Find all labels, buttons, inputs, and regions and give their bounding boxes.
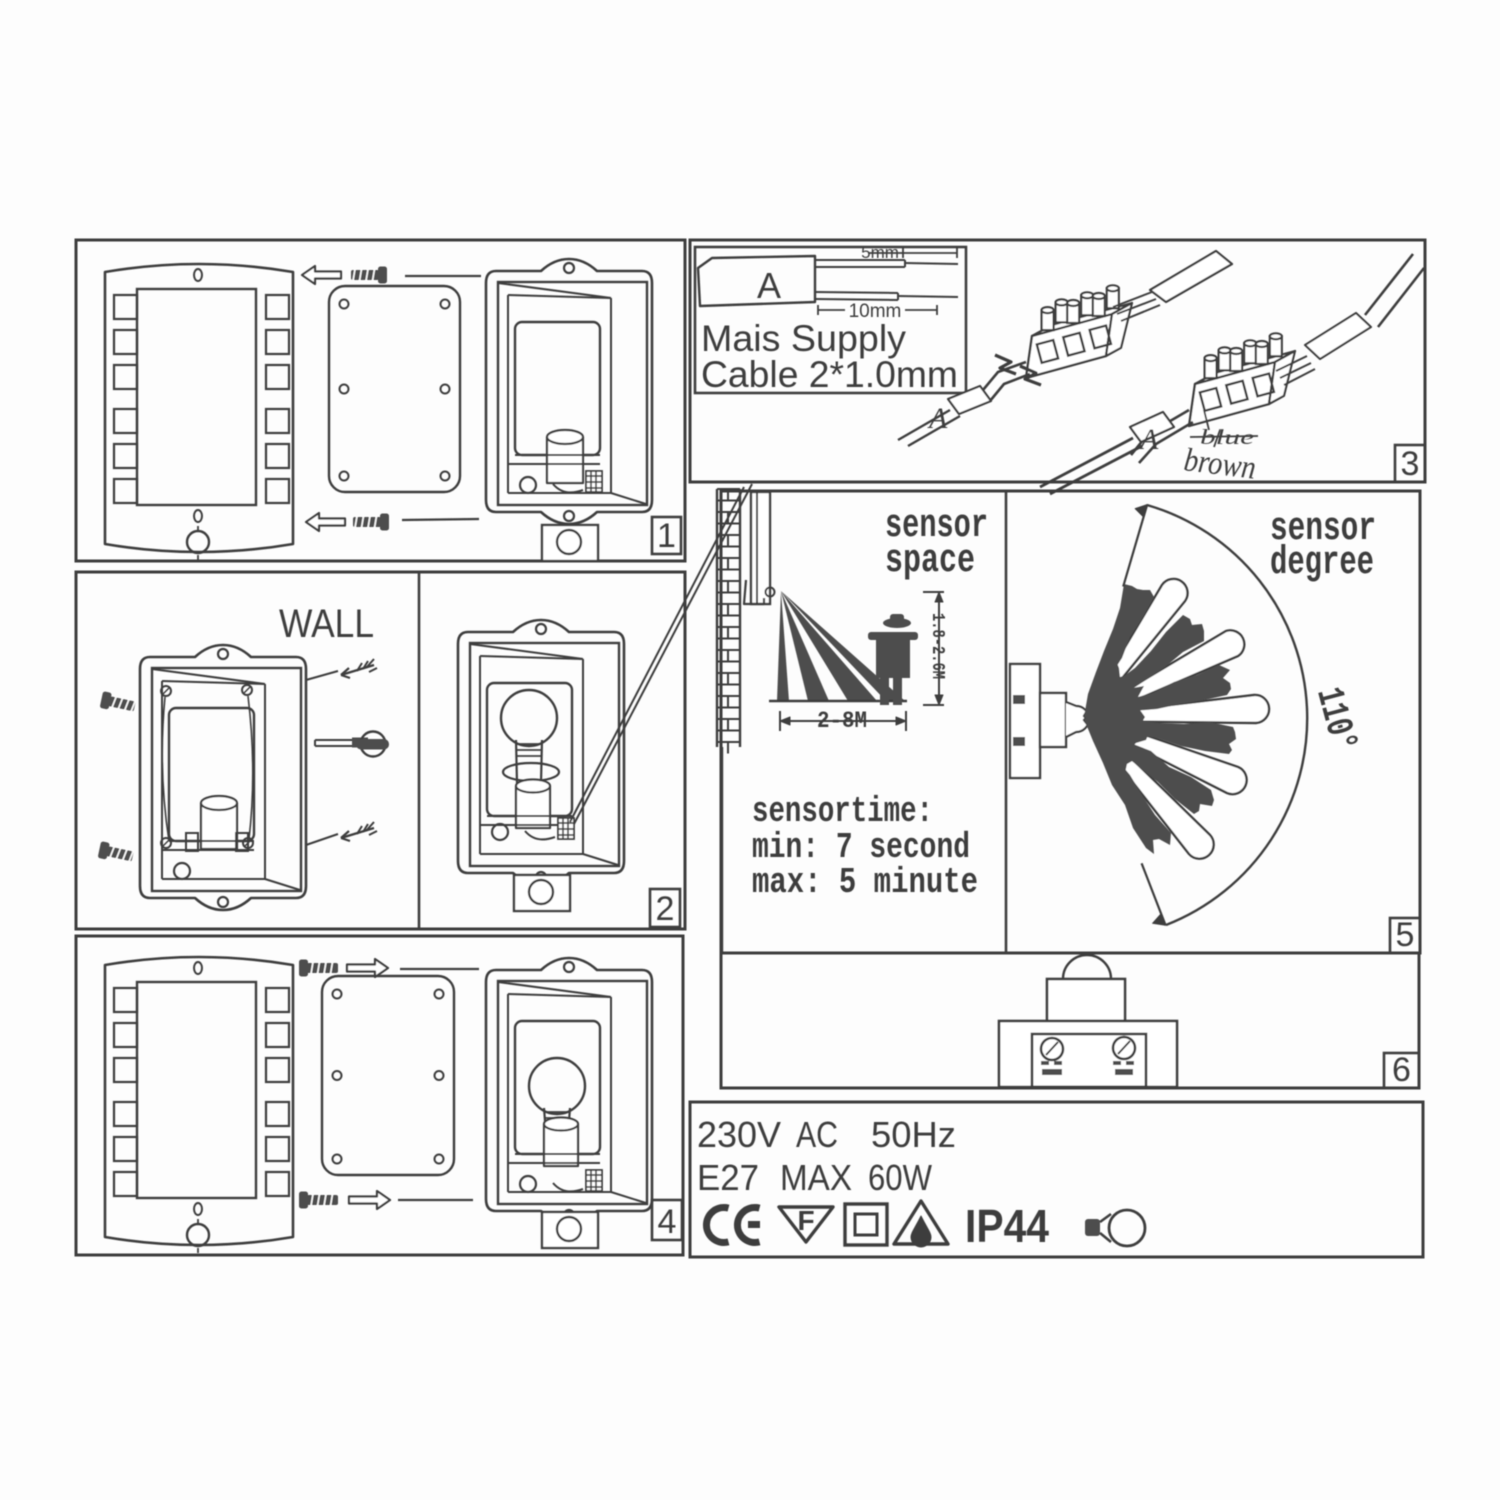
svg-text:max: 5 minute: max: 5 minute — [752, 862, 978, 903]
svg-text:IP44: IP44 — [965, 1200, 1049, 1252]
svg-text:5: 5 — [1396, 916, 1415, 954]
svg-text:3: 3 — [1401, 445, 1420, 483]
svg-text:6: 6 — [1392, 1051, 1411, 1089]
svg-text:AC: AC — [796, 1114, 838, 1155]
svg-text:50Hz: 50Hz — [871, 1114, 956, 1155]
svg-text:1: 1 — [657, 517, 676, 555]
svg-text:5mm: 5mm — [861, 243, 899, 262]
svg-text:MAX: MAX — [780, 1157, 852, 1198]
svg-text:degree: degree — [1270, 541, 1374, 586]
svg-text:60W: 60W — [868, 1157, 932, 1198]
svg-text:F: F — [797, 1205, 814, 1236]
svg-text:4: 4 — [658, 1203, 677, 1241]
svg-text:space: space — [885, 539, 975, 584]
svg-text:1.8-2.6M: 1.8-2.6M — [927, 613, 947, 679]
svg-text:A: A — [927, 402, 948, 435]
svg-text:sensortime:: sensortime: — [752, 791, 933, 832]
svg-text:2-8M: 2-8M — [817, 708, 867, 734]
svg-text:E27: E27 — [697, 1157, 759, 1198]
svg-text:WALL: WALL — [279, 602, 374, 646]
svg-text:A: A — [1138, 423, 1159, 456]
svg-text:Mais Supply: Mais Supply — [701, 318, 907, 359]
svg-text:A: A — [757, 265, 781, 306]
svg-text:Cable 2*1.0mm: Cable 2*1.0mm — [701, 354, 958, 395]
svg-text:230V: 230V — [697, 1114, 781, 1155]
svg-text:2: 2 — [656, 890, 675, 928]
